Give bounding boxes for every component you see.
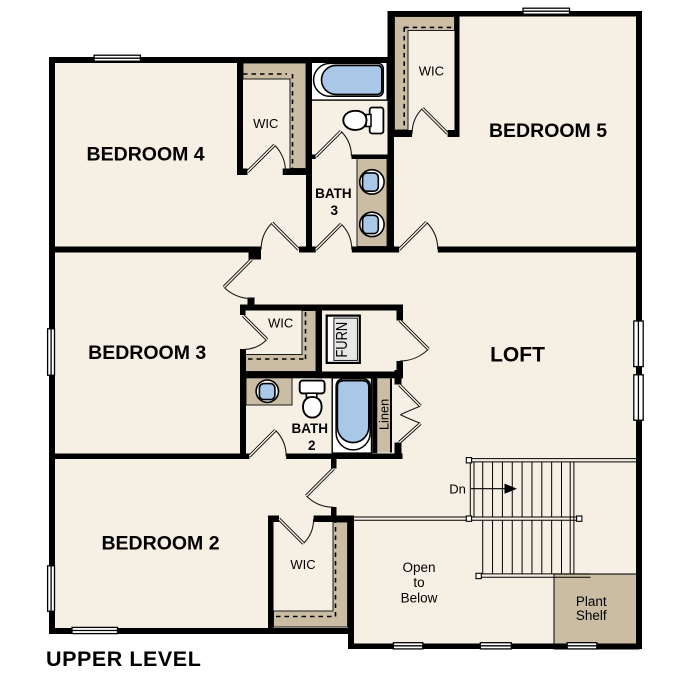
svg-text:Linen: Linen (376, 399, 391, 430)
svg-text:BEDROOM 2: BEDROOM 2 (101, 532, 219, 554)
svg-text:3: 3 (330, 203, 338, 218)
svg-text:Open: Open (402, 560, 435, 575)
svg-text:BEDROOM 5: BEDROOM 5 (489, 120, 607, 142)
svg-text:to: to (413, 575, 424, 590)
svg-text:Dn: Dn (449, 482, 466, 497)
svg-text:FURN: FURN (334, 322, 351, 358)
svg-text:WIC: WIC (290, 557, 315, 572)
svg-text:BEDROOM 4: BEDROOM 4 (87, 143, 205, 165)
svg-text:Plant: Plant (576, 594, 607, 609)
svg-text:BATH: BATH (292, 421, 329, 436)
svg-text:BEDROOM 3: BEDROOM 3 (88, 342, 206, 364)
svg-text:2: 2 (308, 438, 316, 453)
svg-text:Below: Below (401, 591, 438, 606)
svg-text:LOFT: LOFT (490, 344, 545, 367)
svg-text:UPPER LEVEL: UPPER LEVEL (46, 647, 201, 671)
svg-text:WIC: WIC (268, 315, 293, 330)
svg-text:WIC: WIC (419, 63, 444, 78)
svg-text:BATH: BATH (315, 186, 352, 201)
svg-text:WIC: WIC (253, 116, 278, 131)
svg-text:Shelf: Shelf (576, 608, 607, 623)
